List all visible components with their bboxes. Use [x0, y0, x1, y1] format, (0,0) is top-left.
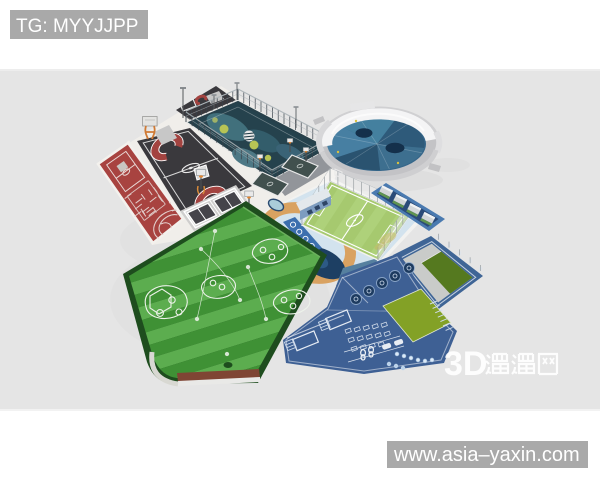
- svg-text:TG: MYYJJPP: TG: MYYJJPP: [16, 16, 138, 37]
- svg-text:3D: 3D: [444, 345, 487, 383]
- svg-text:www.asia–yaxin.com: www.asia–yaxin.com: [393, 444, 580, 466]
